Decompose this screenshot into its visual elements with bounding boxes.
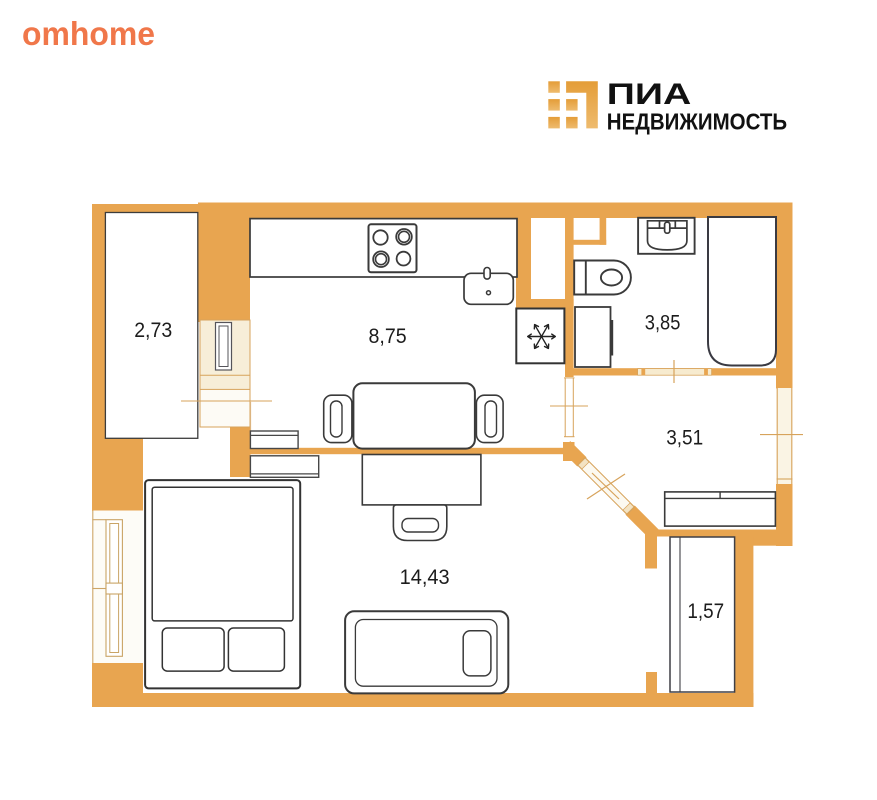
svg-text:ПИА: ПИА [607, 78, 692, 111]
svg-text:3,85: 3,85 [645, 311, 681, 335]
svg-text:2,73: 2,73 [134, 318, 172, 342]
svg-text:3,51: 3,51 [666, 426, 703, 450]
svg-text:НЕДВИЖИМОСТЬ: НЕДВИЖИМОСТЬ [607, 108, 787, 134]
svg-text:1,57: 1,57 [687, 599, 724, 623]
svg-text:omhome: omhome [22, 15, 155, 52]
svg-text:8,75: 8,75 [369, 324, 407, 348]
svg-text:14,43: 14,43 [400, 565, 450, 589]
